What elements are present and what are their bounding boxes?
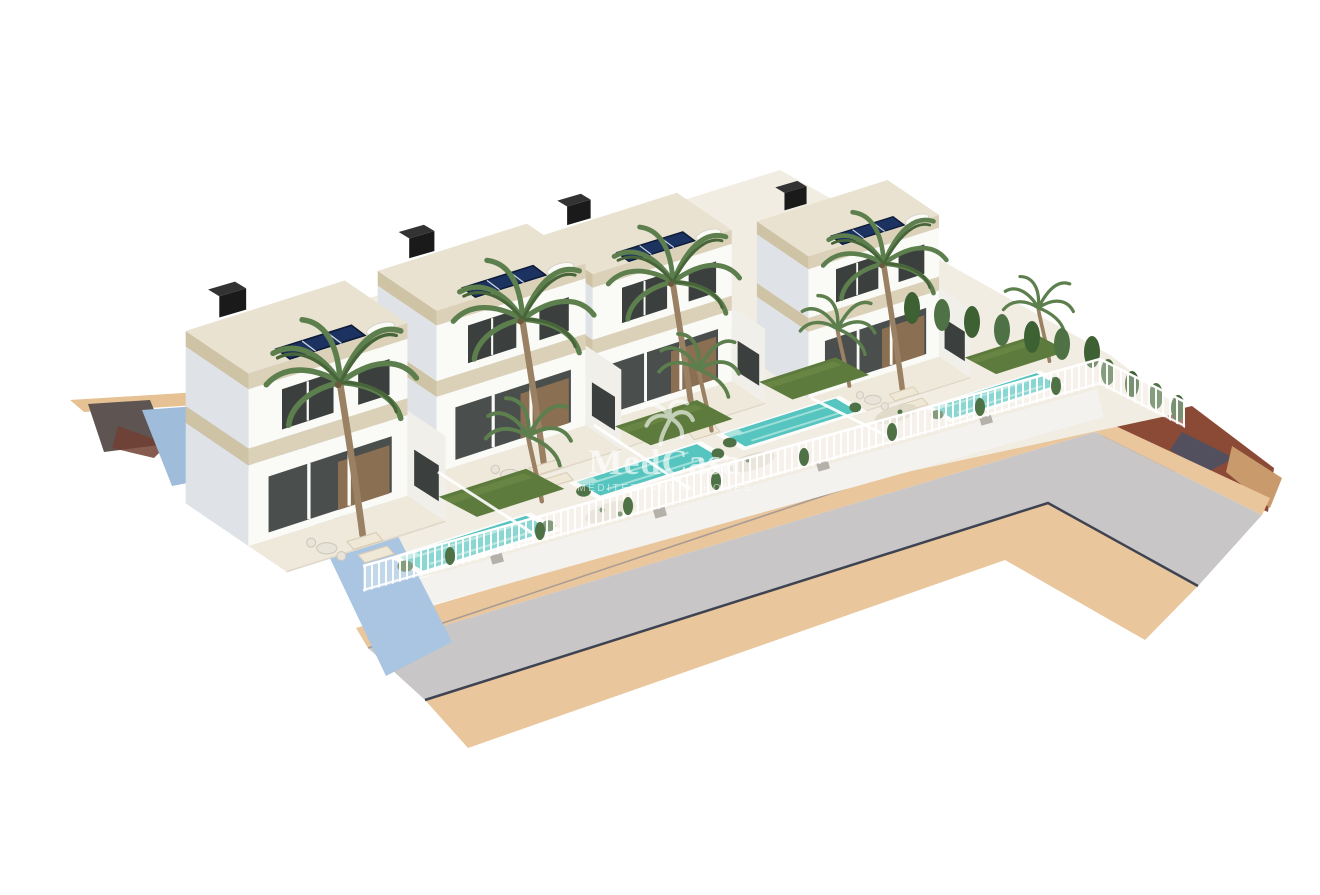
render-canvas: MedCasa MEDITERRANEAN HOMES	[0, 0, 1320, 895]
scene	[0, 0, 1320, 895]
